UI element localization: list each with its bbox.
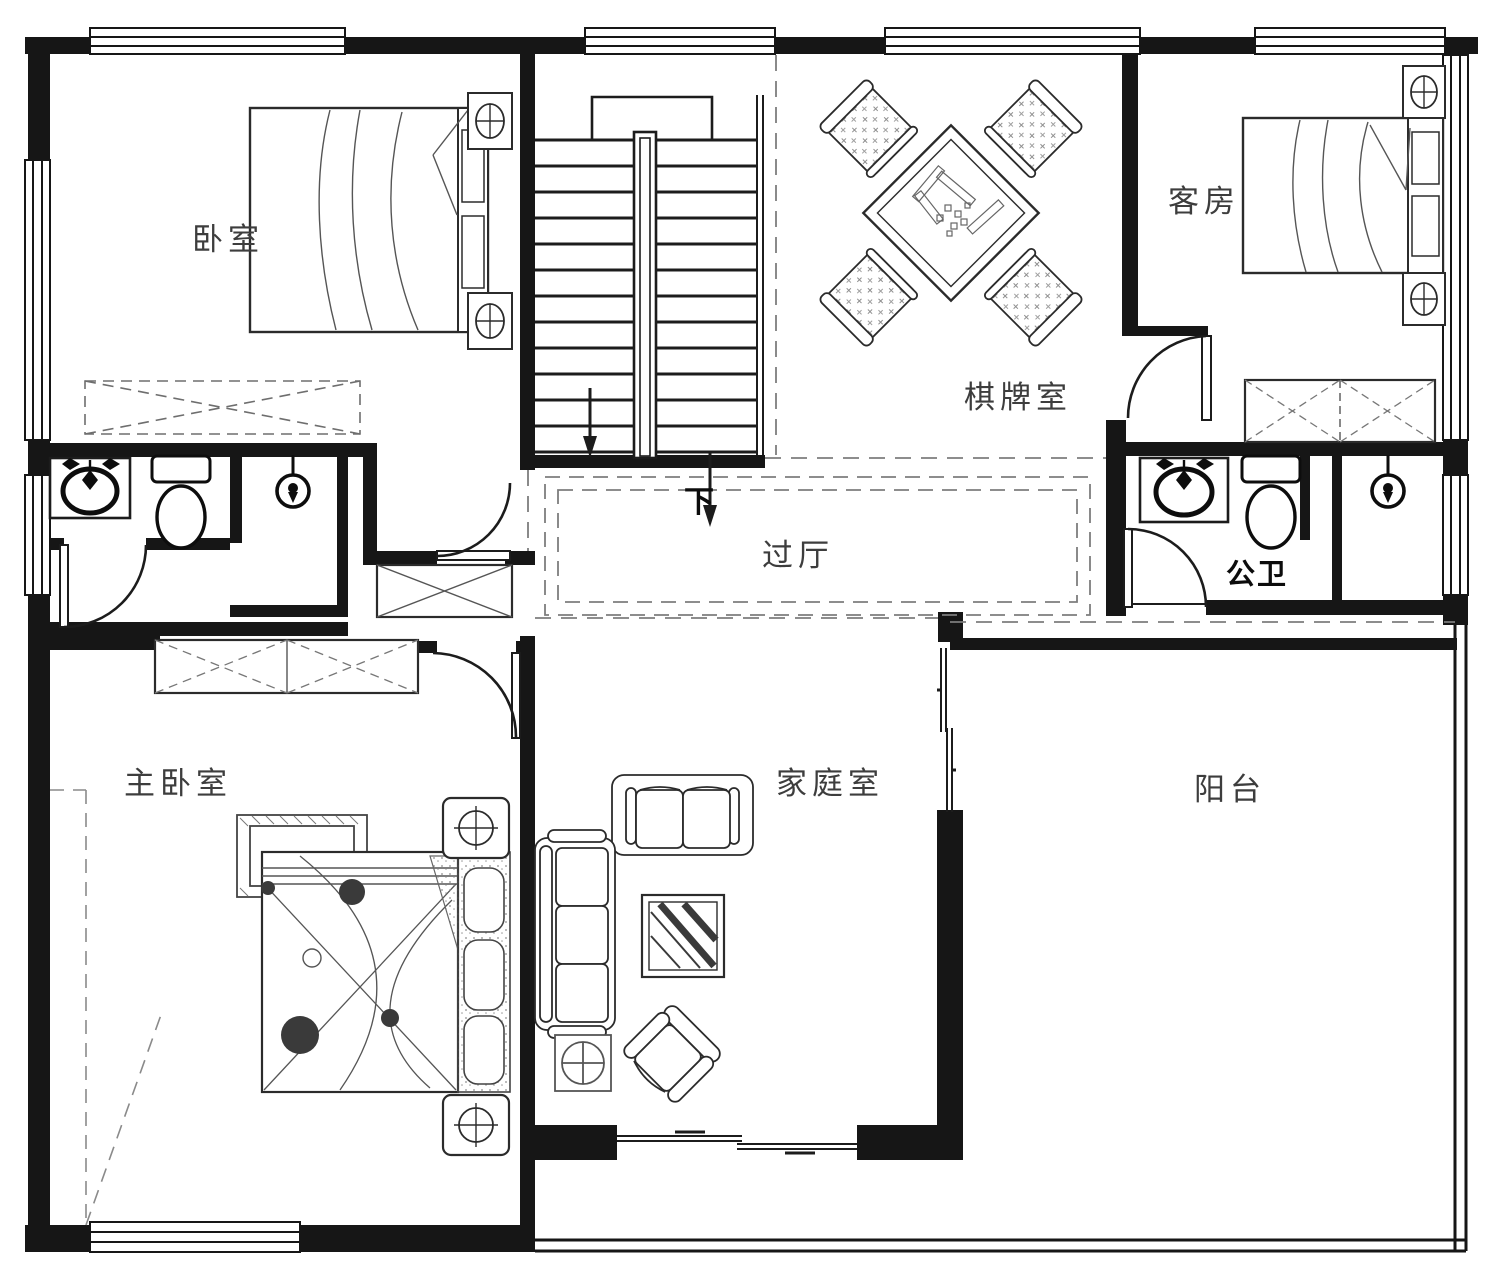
room-label-public-bath: 公卫 [1226,557,1288,591]
room-label-hallway: 过厅 [762,538,834,574]
room-label-game-room: 棋牌室 [964,380,1072,416]
mahjong-chair-icon-sw [818,247,918,347]
sink-icon-public-bath [1140,458,1228,522]
wardrobe-icon-guest [1245,380,1435,442]
window-icon-top-guestroom [1255,28,1445,54]
bed-icon-bedroom [250,108,488,332]
room-label-master-bedroom: 主卧室 [124,766,232,802]
toilet-icon-left-bath [152,456,210,548]
sofa-icon-loveseat [612,775,753,855]
side-table-plant-icon [555,1035,611,1091]
bed-icon-guest [1243,118,1443,273]
window-icon-left-bedroom [25,160,50,440]
sliding-door-family-bottom [617,1132,857,1153]
window-icon-top-bedroom [90,28,345,54]
wardrobe-icon-bedroom [85,381,360,434]
wardrobe-icon-corridor [377,565,512,617]
window-icon-top-stairs [585,28,775,54]
mahjong-chair-icon-ne [983,78,1083,178]
mahjong-chair-icon-se [983,247,1083,347]
window-icon-bottom-master [90,1222,300,1252]
door-arc-bedroom [437,483,510,560]
bed-icon-master [261,852,458,1092]
sofa-icon-three-seat [535,830,615,1038]
floor-plan: 卧室 客房 棋牌室 过厅 公卫 主卧室 家庭室 阳台 下 [0,0,1500,1277]
nightstand-icon-guest-top [1403,66,1445,118]
room-label-guest-room: 客房 [1168,184,1240,220]
sink-icon-left-bath [50,458,130,518]
door-arc-public-bath [1124,529,1206,607]
room-label-bedroom: 卧室 [192,222,264,258]
room-label-family-room: 家庭室 [776,766,884,802]
armchair-icon [620,1001,725,1106]
door-arc-guest-room [1128,336,1211,420]
window-icon-left-bath [25,475,50,595]
sliding-door-family-balcony [937,648,956,812]
nightstand-icon-master-bottom [443,1095,509,1155]
door-arc-master-bedroom [433,653,520,738]
door-arc-bath-left [60,545,146,627]
nightstand-icon-guest-bottom [1403,273,1445,325]
side-cabinet-icon-master [458,852,510,1092]
toilet-icon-public-bath [1242,456,1300,548]
shower-icon-public-bath [1372,455,1404,507]
shower-icon-left-bath [277,455,309,507]
window-icon-right-bath [1443,475,1468,595]
mahjong-chair-icon-nw [818,78,918,178]
nightstand-icon-bedroom-bottom [468,293,512,349]
wardrobe-icon-master [155,640,418,693]
mahjong-table-icon [818,78,1083,347]
nightstand-icon-bedroom-top [468,93,512,149]
nightstand-icon-master-top [443,798,509,858]
master-bedroom-dashed-lines [50,790,162,1225]
stairs-down-label: 下 [684,485,716,520]
window-icon-right-guestroom [1443,55,1468,440]
coffee-table-icon [642,895,724,977]
floor-plan-drawing: 卧室 客房 棋牌室 过厅 公卫 主卧室 家庭室 阳台 下 [0,0,1500,1277]
room-label-balcony: 阳台 [1194,772,1266,808]
window-icon-top-gameroom [885,28,1140,54]
